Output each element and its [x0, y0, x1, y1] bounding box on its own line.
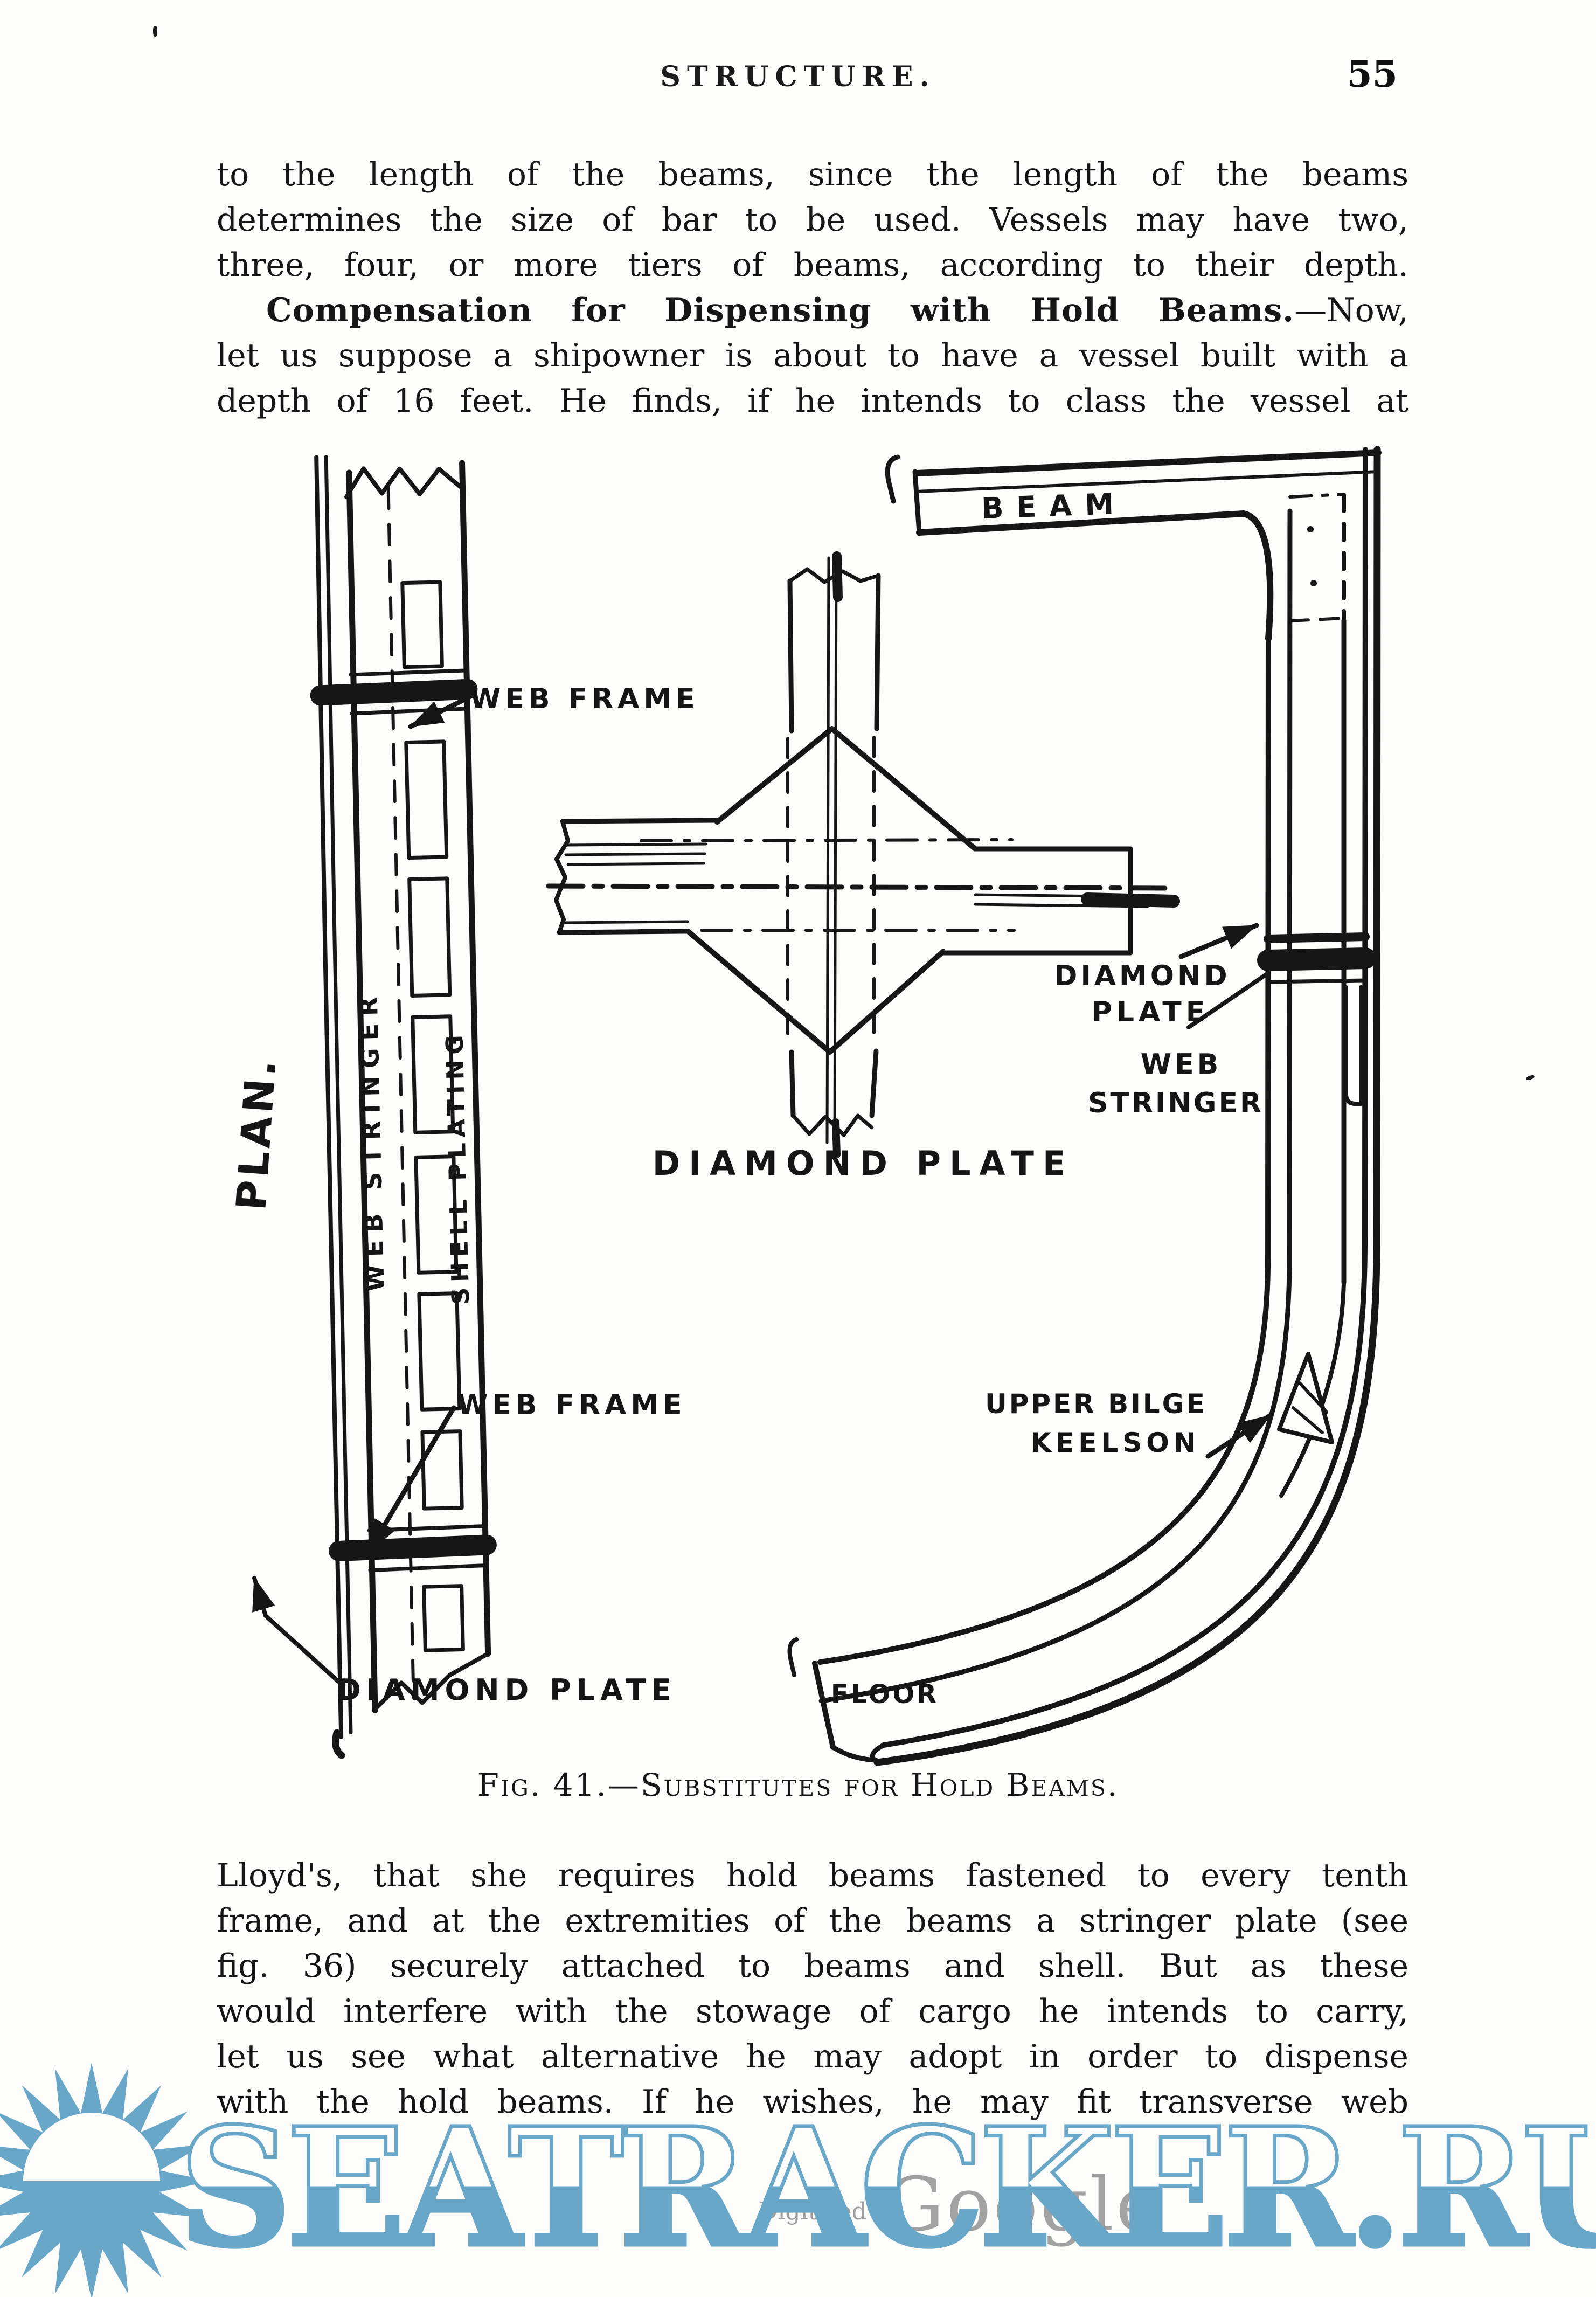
stringer-band-line — [1268, 980, 1365, 982]
web-frame-band — [351, 709, 468, 714]
dashed-plate-bottom — [1290, 618, 1344, 621]
bilge-curve-shell-outer — [877, 1246, 1377, 1762]
body-line: Lloyd's, that she requires hold beams fa… — [217, 1853, 1408, 1898]
dash-dot-upper — [641, 840, 1012, 841]
diamond-plate-bottom-leader — [254, 1578, 338, 1682]
body-line: depth of 16 feet. He finds, if he intend… — [217, 378, 1408, 424]
stringer-band-thick — [1268, 958, 1365, 960]
paragraph-3: Lloyd's, that she requires hold beams fa… — [217, 1853, 1408, 2125]
diamond-edge-upper — [717, 729, 975, 849]
frame-bar-bottom-right — [872, 1051, 876, 1116]
dash-dot-center — [549, 886, 1170, 888]
beam-top-line — [917, 453, 1378, 473]
stringer-clip — [1346, 987, 1361, 1104]
web-stringer-right-label-1: WEB — [1141, 1048, 1222, 1081]
left-arm-fill — [556, 819, 642, 933]
dashed-plate-top — [1290, 494, 1344, 497]
beam-label: BEAM — [981, 487, 1127, 525]
frame-bar-top-right — [877, 576, 878, 729]
body-line: would interfere with the stowage of carg… — [217, 1989, 1408, 2034]
web-frame-band — [339, 1545, 487, 1551]
plan-view-strip: WEB STRINGER SHELL PLATING — [306, 454, 492, 1755]
section-heading: Compensation for Dispensing with Hold Be… — [266, 292, 1294, 329]
body-line: to the length of the beams, since the le… — [217, 152, 1408, 197]
floor-hook — [790, 1639, 796, 1675]
watermark: SEATRACKER.RU SEATRACKER.RU — [179, 2094, 1596, 2283]
left-arm-top — [563, 820, 717, 821]
diamond-plate-plan — [549, 556, 1174, 1154]
web-stringer-vertical-label: WEB STRINGER — [354, 989, 390, 1292]
bilge-curve-shell-inner — [884, 1246, 1365, 1745]
body-line: let us suppose a shipowner is about to h… — [217, 333, 1408, 378]
rivet-dot — [1307, 526, 1314, 532]
beam-left-hook — [887, 457, 898, 501]
body-line: fig. 36) securely attached to beams and … — [217, 1943, 1408, 1989]
torn-break-top — [346, 466, 462, 497]
frame-bar-centerlines — [827, 558, 836, 1143]
bilge-curve-inner-1 — [820, 1268, 1268, 1662]
beam-top-line-2 — [917, 472, 1378, 492]
paragraph-2: Compensation for Dispensing with Hold Be… — [217, 288, 1408, 424]
upper-bilge-keelson-label-2: KEELSON — [1030, 1427, 1200, 1458]
body-line: let us see what alternative he may adopt… — [217, 2034, 1408, 2079]
diamond-plate-bottom-label: DIAMOND PLATE — [337, 1673, 676, 1707]
beam-left-end — [915, 472, 919, 534]
body-line: three, four, or more tiers of beams, acc… — [217, 243, 1408, 288]
rivet-dot — [1310, 580, 1317, 586]
figure-caption: Fig. 41.—Substitutes for Hold Beams. — [0, 1767, 1596, 1803]
shell-outer — [1377, 449, 1377, 1246]
diamond-plate-right-label-1: DIAMOND — [1054, 960, 1230, 992]
paragraph-1: to the length of the beams, since the le… — [217, 152, 1408, 288]
body-line: determines the size of bar to be used. V… — [217, 197, 1408, 243]
plan-label: PLAN. — [232, 1055, 286, 1212]
upper-bilge-keelson-label-1: UPPER BILGE — [985, 1388, 1207, 1420]
heading-continuation: —Now, — [1294, 292, 1408, 329]
bilge-curve-inner-2 — [821, 1268, 1289, 1701]
diamond-plate-right-arrow — [1181, 925, 1257, 957]
web-frame-band — [370, 1565, 487, 1570]
web-stringer-right-label-2: STRINGER — [1088, 1087, 1264, 1119]
web-frame-band — [321, 689, 468, 695]
web-frame-bottom-label: WEB FRAME — [457, 1389, 686, 1421]
scan-speck — [153, 26, 157, 37]
diamond-plate-caption: DIAMOND PLATE — [653, 1144, 1074, 1183]
figure-41-diagram: WEB STRINGER SHELL PLATING PLAN. WEB FRA… — [232, 442, 1417, 1768]
frame-bar-top-left — [790, 581, 792, 731]
scanned-book-page: STRUCTURE. 55 to the length of the beams… — [0, 0, 1596, 2297]
body-line: frame, and at the extremities of the bea… — [217, 1898, 1408, 1943]
page-number: 55 — [1347, 53, 1398, 96]
frame-bar-bottom-left — [792, 1052, 793, 1116]
body-line-heading: Compensation for Dispensing with Hold Be… — [217, 288, 1408, 333]
beam-bottom-and-knee — [919, 514, 1270, 639]
shell-inner — [1365, 449, 1365, 1246]
stringer-band-thin — [1268, 937, 1365, 939]
shell-plating-label: SHELL PLATING — [441, 1029, 475, 1305]
floor-bottom-line — [833, 1747, 876, 1760]
web-frame-top-label: WEB FRAME — [470, 683, 699, 715]
floor-label: FLOOR — [831, 1679, 939, 1710]
scan-speck — [1525, 1074, 1535, 1081]
web-frame-band — [369, 1526, 486, 1530]
right-lug-heavy-dash — [1087, 899, 1174, 901]
web-frame-band — [351, 670, 467, 675]
diamond-edge-lower — [688, 931, 943, 1052]
frame-inner-line-2 — [1289, 511, 1290, 1268]
figure-41: WEB STRINGER SHELL PLATING PLAN. WEB FRA… — [232, 442, 1417, 1768]
